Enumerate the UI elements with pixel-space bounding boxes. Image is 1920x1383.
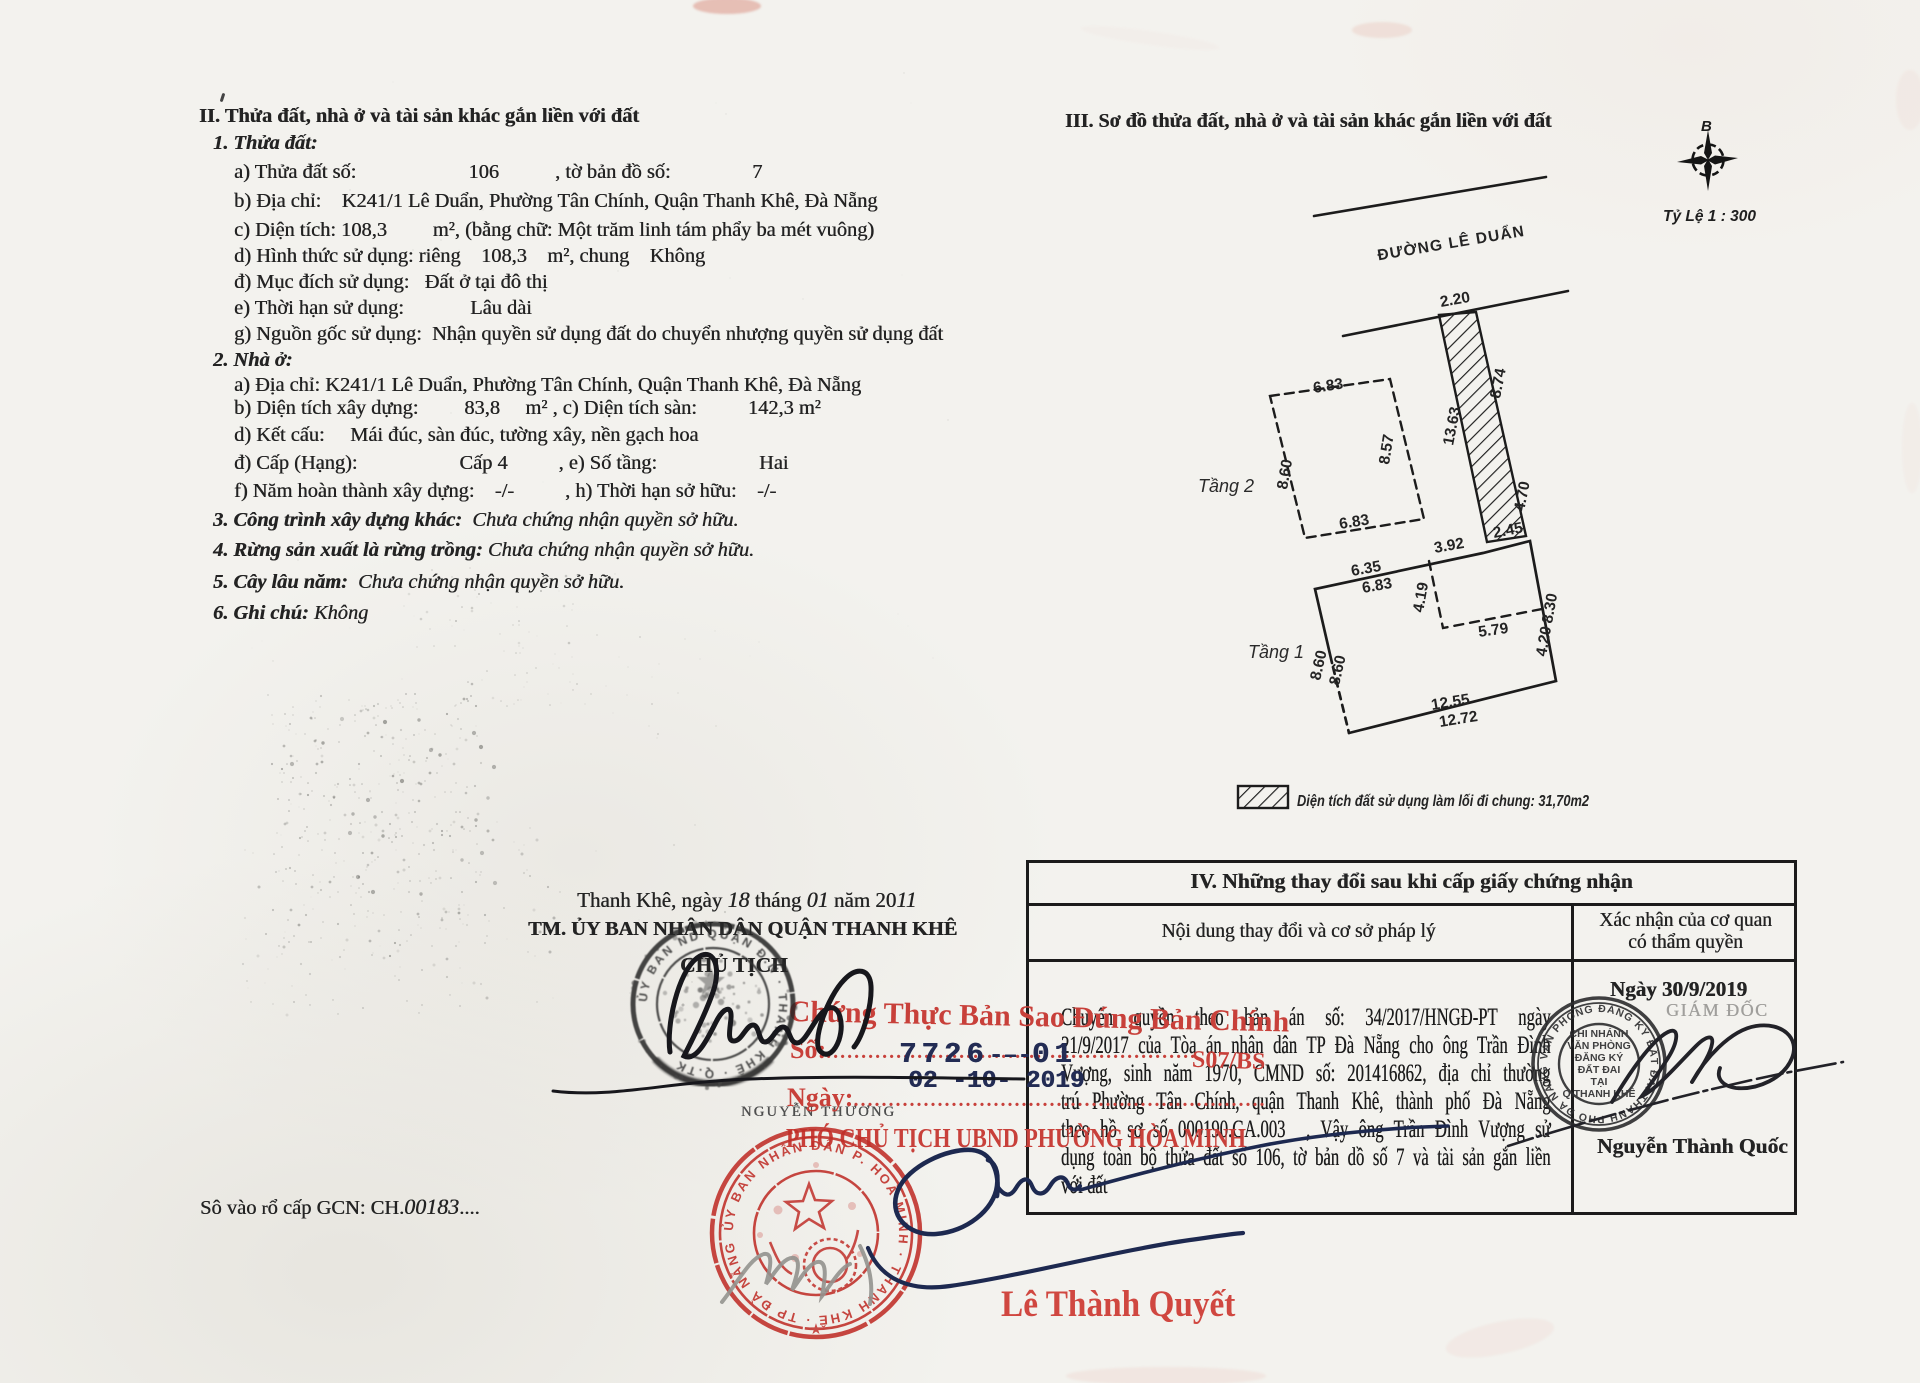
svg-text:ĐĂNG KÝ: ĐĂNG KÝ bbox=[1575, 1051, 1623, 1064]
svg-text:★: ★ bbox=[809, 1322, 822, 1338]
svg-text:VĂN PHÒNG: VĂN PHÒNG bbox=[1567, 1039, 1631, 1052]
svg-text:ĐẤT ĐAI: ĐẤT ĐAI bbox=[1578, 1063, 1621, 1076]
svg-text:VĂN PHÒNG ĐĂNG KÝ ĐẤT ĐAI THÀN: VĂN PHÒNG ĐĂNG KÝ ĐẤT ĐAI THÀNH PHỐ ĐÀ N… bbox=[0, 0, 1661, 1125]
svg-text:Q.THANH KHÊ: Q.THANH KHÊ bbox=[1563, 1087, 1636, 1100]
svg-text:CHI NHÁNH: CHI NHÁNH bbox=[1570, 1027, 1629, 1040]
svg-text:ỦY BAN NHÂN DÂN P. HOÀ MINH ·: ỦY BAN NHÂN DÂN P. HOÀ MINH · THANH KHÊ … bbox=[0, 0, 911, 1328]
svg-text:TẠI: TẠI bbox=[1591, 1076, 1608, 1088]
